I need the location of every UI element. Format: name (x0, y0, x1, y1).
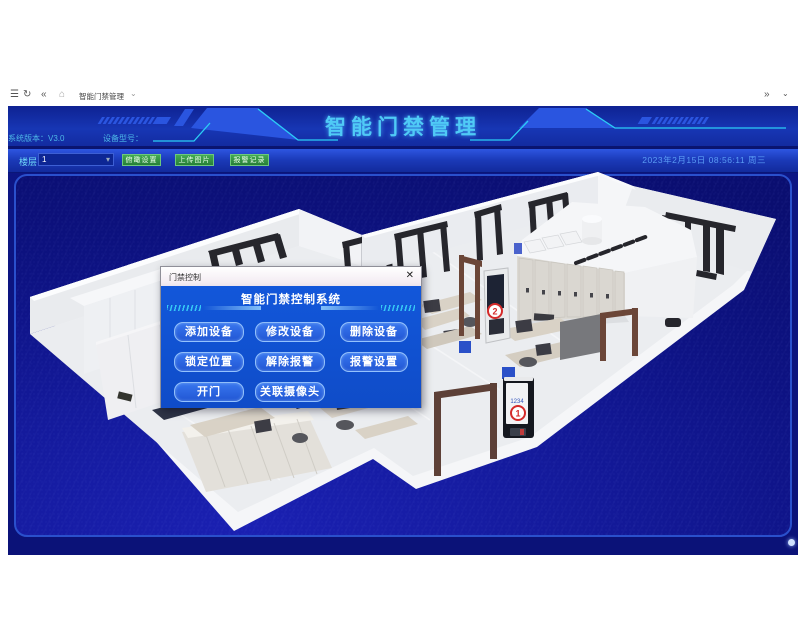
svg-text:2: 2 (492, 307, 497, 317)
svg-text:1234: 1234 (510, 399, 524, 405)
svg-text:1: 1 (515, 409, 520, 419)
